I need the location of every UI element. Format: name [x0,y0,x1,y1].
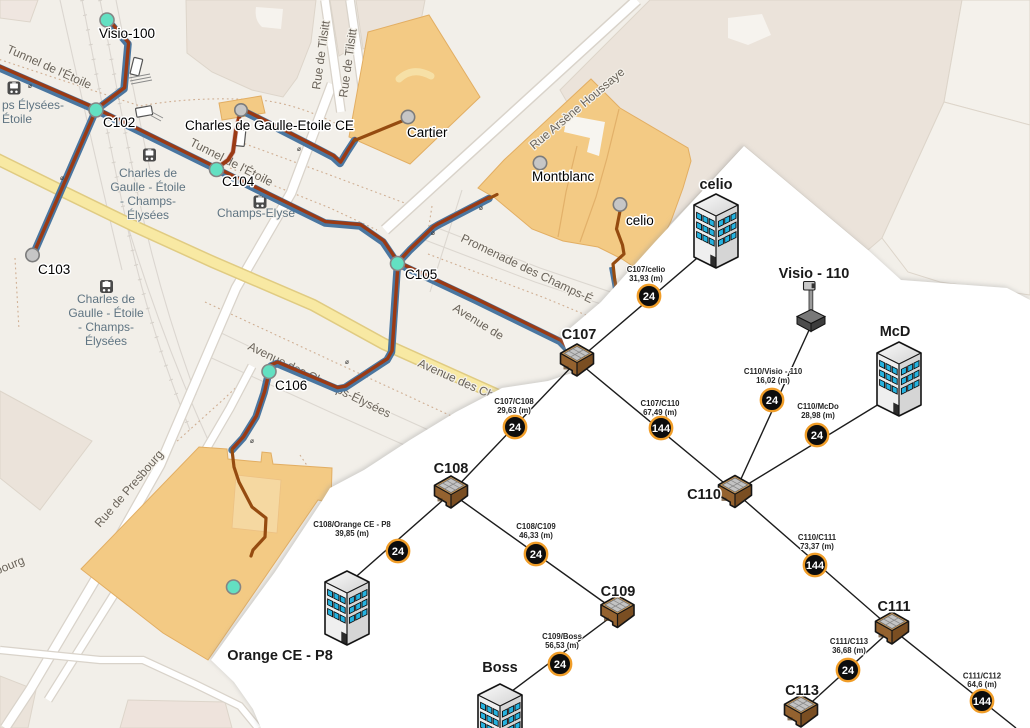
svg-text:C105: C105 [405,267,437,282]
svg-text:celio: celio [699,177,732,193]
svg-text:Visio - 110: Visio - 110 [779,266,850,282]
svg-text:28,98 (m): 28,98 (m) [801,411,835,420]
svg-text:24: 24 [766,395,779,407]
svg-text:16,02 (m): 16,02 (m) [756,376,790,385]
svg-text:C110/Visio - 110: C110/Visio - 110 [744,367,803,376]
svg-text:Charles de: Charles de [77,292,135,306]
svg-text:Étoile: Étoile [2,111,32,126]
svg-text:C106: C106 [275,378,307,393]
svg-text:C110/McDo: C110/McDo [797,402,839,411]
svg-text:24: 24 [554,659,567,671]
svg-text:C107/C110: C107/C110 [640,399,680,408]
svg-text:celio: celio [626,213,654,228]
svg-text:Gaulle - Étoile: Gaulle - Étoile [110,179,186,194]
svg-text:24: 24 [811,430,824,442]
svg-text:C108/Orange CE - P8: C108/Orange CE - P8 [313,520,391,529]
svg-text:C107: C107 [562,327,597,343]
svg-text:144: 144 [806,560,825,572]
svg-text:C107/celio: C107/celio [627,265,666,274]
svg-text:C103: C103 [38,262,70,277]
svg-text:ø: ø [297,146,301,153]
svg-text:64,6 (m): 64,6 (m) [967,680,997,689]
svg-text:McD: McD [880,324,911,340]
svg-text:C111: C111 [877,599,910,615]
svg-text:Charles de: Charles de [119,166,177,180]
svg-text:ø: ø [479,205,483,212]
svg-text:Élysées: Élysées [127,207,169,222]
svg-text:39,85 (m): 39,85 (m) [335,529,369,538]
svg-text:31,93 (m): 31,93 (m) [629,274,663,283]
svg-text:C108/C109: C108/C109 [516,522,556,531]
svg-text:C110/C111: C110/C111 [798,533,837,542]
svg-text:ø: ø [345,359,349,366]
svg-text:ø: ø [60,175,64,182]
svg-text:C109: C109 [601,584,636,600]
svg-text:C113: C113 [785,683,819,699]
svg-text:C102: C102 [103,115,135,130]
svg-text:Visio-100: Visio-100 [99,26,155,41]
svg-text:ø: ø [431,230,435,237]
svg-text:ø: ø [28,83,32,90]
svg-text:C107/C108: C107/C108 [494,397,534,406]
svg-text:Champs-Elysé: Champs-Elysé [217,206,295,220]
svg-text:Élysées: Élysées [85,333,127,348]
svg-text:C111/C113: C111/C113 [830,637,869,646]
svg-text:Gaulle - Étoile: Gaulle - Étoile [68,305,144,320]
svg-text:ø: ø [250,438,254,445]
svg-text:Montblanc: Montblanc [532,169,595,184]
svg-text:29,63 (m): 29,63 (m) [497,406,531,415]
svg-text:36,68 (m): 36,68 (m) [832,646,866,655]
svg-text:24: 24 [530,549,543,561]
svg-text:24: 24 [392,546,405,558]
svg-text:144: 144 [973,696,992,708]
svg-text:C109/Boss: C109/Boss [542,632,583,641]
svg-text:24: 24 [842,665,855,677]
svg-text:56,53 (m): 56,53 (m) [545,641,579,650]
svg-text:24: 24 [509,422,522,434]
svg-text:Charles de Gaulle-Etoile CE: Charles de Gaulle-Etoile CE [185,118,354,133]
svg-text:C108: C108 [434,461,469,477]
svg-text:Cartier: Cartier [407,125,448,140]
svg-text:Orange CE - P8: Orange CE - P8 [227,648,333,664]
svg-text:ps Élysées-: ps Élysées- [2,97,64,112]
svg-text:144: 144 [652,423,671,435]
svg-text:C104: C104 [222,174,255,189]
svg-text:- Champs-: - Champs- [78,320,134,334]
svg-text:C110: C110 [687,487,721,503]
svg-text:Boss: Boss [482,660,517,676]
svg-text:24: 24 [643,291,656,303]
svg-text:73,37 (m): 73,37 (m) [800,542,834,551]
svg-text:46,33 (m): 46,33 (m) [519,531,553,540]
svg-text:- Champs-: - Champs- [120,194,176,208]
